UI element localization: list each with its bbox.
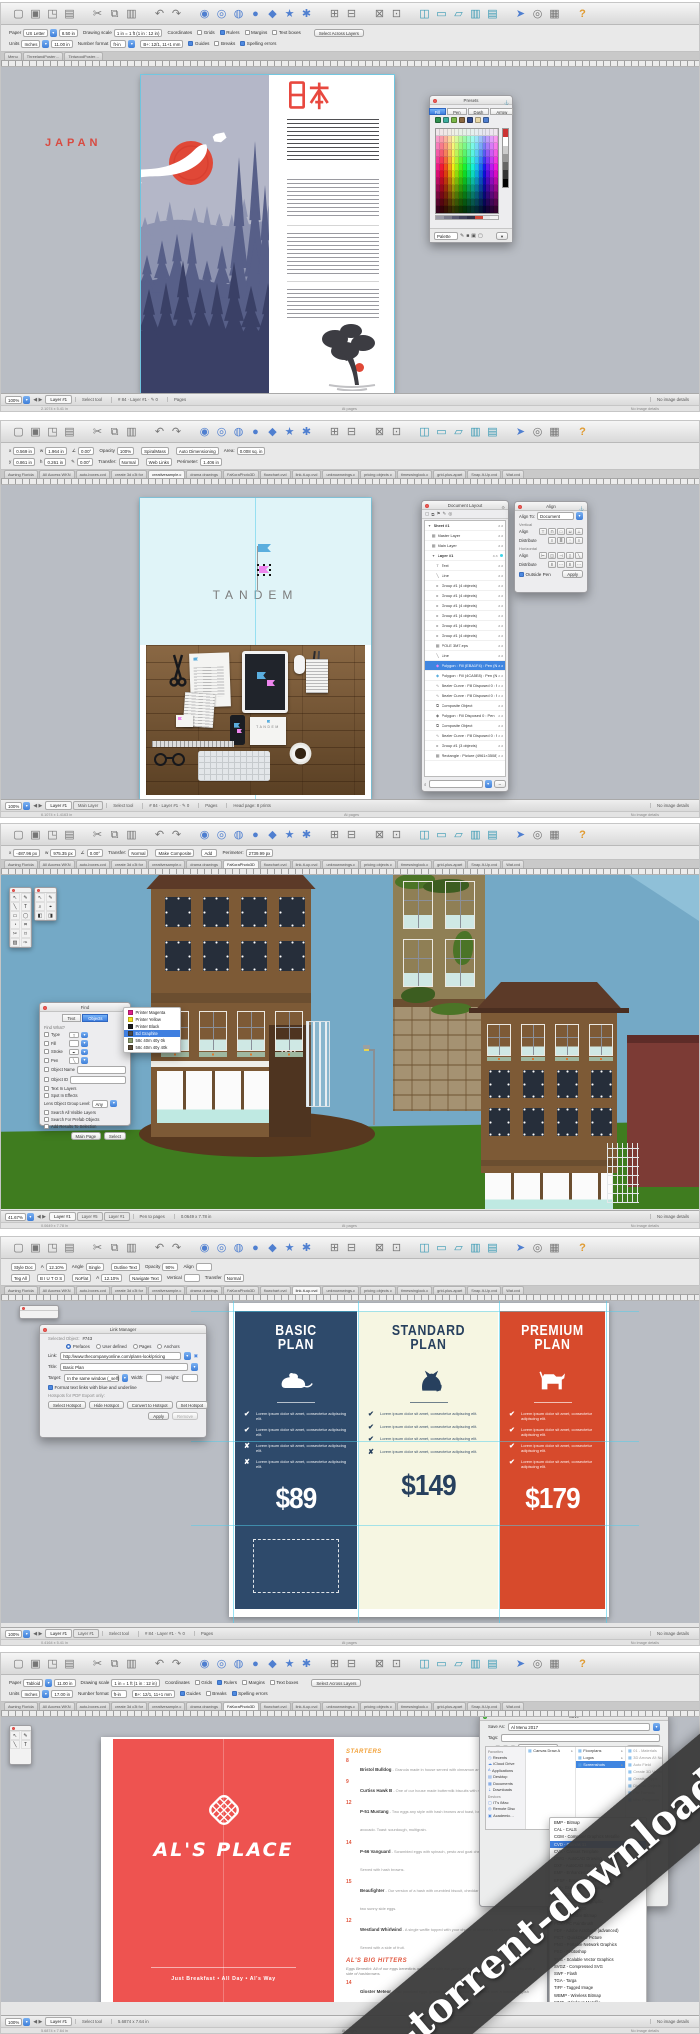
gray-swatch[interactable] <box>503 137 508 145</box>
share-icon[interactable]: ➤ <box>513 1238 528 1258</box>
ink-icon[interactable]: ◍ <box>231 4 246 24</box>
open-icon[interactable]: ▣ <box>28 422 43 442</box>
layer-row[interactable]: ▦ Main Layer a a <box>425 541 505 551</box>
layer-row[interactable]: ▦ Rectangle : Picture (4961×3508) a a <box>425 751 505 761</box>
preview-icon[interactable]: ◎ <box>530 825 545 845</box>
save-icon[interactable]: ◳ <box>45 4 60 24</box>
grids-checkbox[interactable]: Grids <box>197 30 214 35</box>
inspector-field[interactable]: 0.861 in <box>13 458 35 466</box>
layer-row[interactable]: ▸ Group #1 (4 objects) a a <box>425 601 505 611</box>
presets-tab[interactable]: Pen <box>447 108 466 116</box>
align-edge-icon[interactable]: ▯ <box>566 552 574 559</box>
grid-icon[interactable]: ⊞ <box>327 1654 342 1674</box>
link-stepper[interactable]: ▾ <box>184 1352 191 1360</box>
align-left-icon[interactable]: ⊢ <box>539 552 547 559</box>
custom-swatch[interactable] <box>459 216 467 219</box>
new-document-icon[interactable]: ▢ <box>11 422 26 442</box>
find-checkbox[interactable] <box>44 1124 49 1129</box>
trash-swatch-icon[interactable]: ▢ <box>478 233 483 239</box>
attribute-checkbox[interactable] <box>44 1032 49 1037</box>
copy-icon[interactable]: ⧉ <box>107 825 122 845</box>
inspector-field[interactable]: Teg All <box>11 1274 30 1282</box>
lock-icon[interactable]: ⊠ <box>372 825 387 845</box>
attribute-stepper[interactable]: ▾ <box>81 1049 88 1056</box>
distribute-span-icon[interactable]: ⋯ <box>575 561 583 568</box>
presets-tab[interactable]: Fill <box>429 108 446 116</box>
link-kind-radio[interactable]: Pages <box>133 1344 152 1349</box>
layer-flags[interactable]: a a <box>493 554 498 558</box>
layer-flags[interactable]: a a <box>498 584 503 588</box>
inspector-field[interactable]: 0.008 sq. in <box>237 447 266 455</box>
zoom-field[interactable]: 100% <box>5 802 22 810</box>
document-tab[interactable]: flowchart.cvd <box>260 470 291 478</box>
layer-row[interactable]: ▾ Sheet #1 a a <box>425 521 505 531</box>
find-button[interactable]: Main Page <box>71 1132 102 1140</box>
document-tab[interactable]: drama drawings <box>186 470 222 478</box>
inspector-field[interactable] <box>184 1274 200 1282</box>
layer-flags[interactable]: a a <box>498 694 503 698</box>
redo-icon[interactable]: ↷ <box>169 825 184 845</box>
zoom-field[interactable]: 100% <box>5 396 22 404</box>
inspector-field[interactable]: B I U T O S <box>37 1274 65 1282</box>
layers-search-stepper[interactable]: ▾ <box>485 780 492 788</box>
custom-swatch[interactable] <box>436 216 444 219</box>
inspector-field[interactable]: 975.35 px <box>50 849 75 857</box>
pasteboard-japan-text[interactable]: JAPAN <box>45 137 101 149</box>
web-palette-icon[interactable] <box>443 117 449 123</box>
undo-icon[interactable]: ↶ <box>152 4 167 24</box>
layout-icon[interactable]: ▭ <box>434 422 449 442</box>
cut-icon[interactable]: ✂ <box>90 1654 105 1674</box>
layer-row[interactable]: ∿ Bezier Curve : Fill Disposed 0 : Pen a… <box>425 681 505 691</box>
guides-checkbox[interactable]: Guides <box>180 1691 201 1696</box>
document-tab[interactable]: Snap-It-Up.cvd <box>467 1286 501 1294</box>
lock-icon[interactable]: ⊠ <box>372 4 387 24</box>
presets-panel[interactable]: Presets⚓ FillPenDashArrow Palette ✎■▣▢ ▾ <box>429 95 513 243</box>
link-kind-radio[interactable]: Anchors <box>157 1344 179 1349</box>
custom-swatch[interactable] <box>444 216 452 219</box>
share-icon[interactable]: ➤ <box>513 422 528 442</box>
document-tab[interactable]: Wat.cvd <box>502 470 524 478</box>
document-tab[interactable]: Snap-It-Up.cvd <box>467 470 501 478</box>
align-anchor-icon[interactable]: ╲ <box>575 552 583 559</box>
color-swatch[interactable] <box>494 171 498 178</box>
presets-tab[interactable]: Dash <box>468 108 490 116</box>
breaks-checkbox[interactable]: Breaks <box>214 41 235 46</box>
document-tab[interactable]: drama drawings <box>186 1286 222 1294</box>
apply-button[interactable]: Apply <box>562 570 583 578</box>
units-select[interactable]: Inches <box>21 1690 40 1698</box>
inspector-field[interactable]: SpiralMass <box>141 447 169 455</box>
layer-tab[interactable]: Layer #1 <box>45 1629 72 1638</box>
premium-plan-column[interactable]: PREMIUMPLAN ✔ Lorem ipsum dolor sit amet… <box>500 1311 605 1609</box>
print-icon[interactable]: ▤ <box>62 1238 77 1258</box>
canvas-tandem[interactable]: TANDEM <box>1 485 699 815</box>
tool-icon[interactable]: ⌗ <box>21 920 31 929</box>
layer-flags[interactable]: a a <box>498 524 503 528</box>
distribute-top-icon[interactable]: ≡ <box>548 537 556 544</box>
pages-icon[interactable]: ▤ <box>485 1238 500 1258</box>
title-stepper[interactable]: ▾ <box>191 1363 198 1371</box>
recent-colors-icon[interactable] <box>435 117 441 123</box>
color-menu-item[interactable]: 58c 40m 40y 0k <box>124 1037 180 1044</box>
plan-price[interactable]: $89 <box>241 1483 351 1516</box>
unlock-icon[interactable]: ⊡ <box>389 422 404 442</box>
canvas-pricing[interactable]: BASICPLAN ✔ Lorem ipsum dolor sit amet, … <box>1 1301 699 1623</box>
tool-palette[interactable]: ↖✎╲T <box>9 1725 32 1765</box>
document-tab[interactable]: pricing objects c <box>360 860 396 868</box>
pricing-page[interactable]: BASICPLAN ✔ Lorem ipsum dolor sit amet, … <box>229 1303 609 1617</box>
layout-icon[interactable]: ▭ <box>434 4 449 24</box>
inspector-field[interactable]: 100% <box>117 447 134 455</box>
attribute-control[interactable]: ╲ <box>69 1057 79 1064</box>
layer-flags[interactable]: a a <box>498 574 503 578</box>
gray-swatch[interactable] <box>503 179 508 187</box>
new-sheet-icon[interactable]: ▢ <box>425 511 429 517</box>
arrange-icon[interactable]: ◫ <box>417 1654 432 1674</box>
presets-titlebar[interactable]: Presets⚓ <box>430 96 512 105</box>
preview-icon[interactable]: ◎ <box>530 1654 545 1674</box>
page-nav-icons[interactable]: ◀ ▶ <box>33 803 42 809</box>
attribute-checkbox[interactable] <box>44 1041 49 1046</box>
black-swatch-icon[interactable]: ■ <box>466 233 469 239</box>
fill-inspector-icon[interactable]: ◉ <box>197 825 212 845</box>
tool-icon[interactable]: ◧ <box>35 911 45 920</box>
document-tab[interactable]: creativesample.c <box>148 470 185 478</box>
guides-checkbox[interactable]: Guides <box>188 41 209 46</box>
inspector-field[interactable]: Navigate Text <box>129 1274 162 1282</box>
inspector-field[interactable]: Auto Dimensioning <box>176 447 219 455</box>
link-manager-titlebar[interactable]: Link Manager <box>40 1325 206 1334</box>
lock-icon[interactable]: ⊠ <box>372 1654 387 1674</box>
undo-icon[interactable]: ↶ <box>152 825 167 845</box>
price-selection[interactable] <box>253 1539 339 1593</box>
save-as-stepper[interactable]: ▾ <box>653 1723 660 1731</box>
symbol-icon[interactable]: ★ <box>282 1654 297 1674</box>
text-wrap-icon[interactable]: ▱ <box>451 825 466 845</box>
layout-icon[interactable]: ▭ <box>434 1654 449 1674</box>
document-tab[interactable]: Wat.cvd <box>502 1286 524 1294</box>
open-icon[interactable]: ▣ <box>28 4 43 24</box>
document-tab[interactable]: unknownwings.c <box>322 860 359 868</box>
distribute-space-icon[interactable]: ⋮ <box>566 537 574 544</box>
layer-row[interactable]: ◆ Polygon : Fill (EBA1F4) : Pen (No…) a … <box>425 661 505 671</box>
color-swatch[interactable] <box>494 206 498 213</box>
layer-flags[interactable]: a a <box>498 614 503 618</box>
layer-row[interactable]: ╲ Line a a <box>425 571 505 581</box>
target-select[interactable]: In the same window (_self) <box>64 1374 119 1382</box>
lens-stepper[interactable]: ▾ <box>110 1100 117 1107</box>
symbol-icon[interactable]: ★ <box>282 4 297 24</box>
plan-price[interactable]: $179 <box>505 1483 600 1516</box>
gradient-icon[interactable]: ◆ <box>265 1654 280 1674</box>
snap-icon[interactable]: ⊟ <box>344 1238 359 1258</box>
open-icon[interactable]: ▣ <box>28 1654 43 1674</box>
document-tab[interactable]: create 3d c3t for <box>111 470 147 478</box>
paper-stepper[interactable]: ▾ <box>45 1679 52 1687</box>
number-format-field[interactable]: ft-in <box>111 1690 127 1698</box>
inspector-field[interactable]: 1.964 in <box>45 447 67 455</box>
help-icon[interactable]: ? <box>575 422 590 442</box>
unlock-icon[interactable]: ⊡ <box>389 825 404 845</box>
grid-icon[interactable]: ⊞ <box>327 825 342 845</box>
color-menu-item[interactable]: Printer Magenta <box>124 1009 180 1016</box>
help-icon[interactable]: ? <box>575 1238 590 1258</box>
layer-flags[interactable]: a a <box>498 754 503 758</box>
restaurant-name[interactable]: AL'S PLACE <box>113 1839 334 1861</box>
print-icon[interactable]: ▤ <box>62 4 77 24</box>
bucket-icon[interactable]: ● <box>248 825 263 845</box>
field-checkbox[interactable] <box>44 1067 49 1072</box>
format-menu-item[interactable]: SWF - Flash <box>550 1970 646 1977</box>
grayscale-strip[interactable] <box>502 128 509 188</box>
document-tab[interactable]: create 3d c3t for <box>111 860 147 868</box>
document-tab[interactable]: auto-boxes.cvd <box>76 470 110 478</box>
layer-flags[interactable]: a a <box>498 564 503 568</box>
document-tab[interactable]: Wat.cvd <box>502 1702 524 1710</box>
cut-icon[interactable]: ✂ <box>90 825 105 845</box>
layer-row[interactable]: ▸ Group #1 (4 objects) a a <box>425 621 505 631</box>
document-tab[interactable]: Awning Florida <box>4 1286 38 1294</box>
preview-icon[interactable]: ◎ <box>530 4 545 24</box>
units-stepper[interactable]: ▾ <box>42 1690 49 1698</box>
paste-icon[interactable]: ▥ <box>124 1654 139 1674</box>
zoom-field[interactable]: 100% <box>5 2018 22 2026</box>
tool-icon[interactable]: ⌕ <box>35 902 45 911</box>
document-tab[interactable]: drama drawings <box>186 860 222 868</box>
columns-icon[interactable]: ▥ <box>468 825 483 845</box>
unlock-icon[interactable]: ⊡ <box>389 1654 404 1674</box>
image-fill-icon[interactable] <box>475 117 481 123</box>
document-tab[interactable]: grid-plus-apart <box>433 1286 466 1294</box>
apply-button[interactable]: Apply <box>148 1412 169 1420</box>
basic-plan-column[interactable]: BASICPLAN ✔ Lorem ipsum dolor sit amet, … <box>235 1311 357 1609</box>
arrange-icon[interactable]: ◫ <box>417 4 432 24</box>
menu-cover-page[interactable]: AL'S PLACE Just Breakfast • All Day • Al… <box>113 1739 334 2002</box>
document-tab[interactable]: pricing objects c <box>360 470 396 478</box>
custom-swatch[interactable] <box>467 216 475 219</box>
layer-flags[interactable]: a a <box>498 624 503 628</box>
grids-checkbox[interactable]: Grids <box>195 1680 212 1685</box>
unlock-icon[interactable]: ⊡ <box>389 4 404 24</box>
layer-tab[interactable]: Layer #1 <box>73 1629 99 1638</box>
spelling-checkbox[interactable]: Spelling errors <box>232 1691 268 1696</box>
save-as-field[interactable]: Al Menu 2017 <box>508 1723 650 1731</box>
save-titlebar[interactable]: Save <box>480 1717 668 1721</box>
grid-icon[interactable]: ⊞ <box>327 4 342 24</box>
eye-column-icon[interactable]: ◎ <box>448 511 452 517</box>
bucket-icon[interactable]: ● <box>248 1654 263 1674</box>
coordinate-extra-field[interactable]: B+: 12/1, 11+1 mm <box>140 40 183 48</box>
close-icon[interactable] <box>518 505 522 509</box>
folder-icon[interactable]: ▣ <box>194 1353 198 1359</box>
folder-row[interactable]: ▦Floorplans▸ <box>576 1747 625 1754</box>
document-tab[interactable]: FaKoraPhoto3D <box>223 470 259 478</box>
document-tab[interactable]: timeswinglock.c <box>397 1702 432 1710</box>
document-tab[interactable]: FaKoraPhoto3D <box>223 1702 259 1710</box>
layer-flags[interactable]: a a <box>498 604 503 608</box>
arrange-icon[interactable]: ◫ <box>417 825 432 845</box>
inspector-field[interactable]: 1.406 in <box>200 458 222 466</box>
columns-icon[interactable]: ▥ <box>468 422 483 442</box>
document-tab[interactable]: Awning Florida <box>4 860 38 868</box>
color-swatch[interactable] <box>494 164 498 171</box>
distribute-right-icon[interactable]: ⫴ <box>566 561 574 568</box>
inspector-field[interactable]: Web Links <box>146 458 172 466</box>
middle-building[interactable] <box>393 875 485 1111</box>
swatch-book-icon[interactable] <box>459 117 465 123</box>
zoom-field[interactable]: 41.67% <box>5 1213 26 1221</box>
cut-icon[interactable]: ✂ <box>90 4 105 24</box>
effects-icon[interactable]: ✱ <box>299 4 314 24</box>
color-swatch[interactable] <box>494 143 498 150</box>
textboxes-checkbox[interactable]: Text boxes <box>272 30 300 35</box>
format-menu-item[interactable]: SVGZ - Compressed SVG <box>550 1963 646 1970</box>
pages-icon[interactable]: ▤ <box>485 1654 500 1674</box>
bucket-icon[interactable]: ● <box>248 4 263 24</box>
document-tab[interactable]: grid-plus-apart <box>433 1702 466 1710</box>
document-tab[interactable]: grid-plus-apart <box>433 860 466 868</box>
save-icon[interactable]: ◳ <box>45 1654 60 1674</box>
inspector-field[interactable]: 90% <box>162 1263 178 1271</box>
export-icon[interactable]: ▦ <box>547 825 562 845</box>
print-icon[interactable]: ▤ <box>62 422 77 442</box>
document-tab[interactable]: link-it-up.cvd <box>292 1702 322 1710</box>
rulers-checkbox[interactable]: Rulers <box>217 1680 237 1685</box>
palette-select[interactable]: Palette <box>434 232 458 240</box>
gradient-icon[interactable]: ◆ <box>265 1238 280 1258</box>
tool-icon[interactable]: ◨ <box>46 911 56 920</box>
document-tab[interactable]: FaKoraPhoto3D <box>223 1286 259 1294</box>
bucket-icon[interactable]: ● <box>248 1238 263 1258</box>
export-icon[interactable]: ▦ <box>547 1654 562 1674</box>
inspector-field[interactable]: 12.10% <box>101 1274 122 1282</box>
inspector-field[interactable]: Single <box>86 1263 104 1271</box>
left-building[interactable] <box>151 875 311 1137</box>
inspector-field[interactable]: 2739.99 px <box>246 849 274 857</box>
effects-icon[interactable]: ✱ <box>299 1238 314 1258</box>
gray-swatch[interactable] <box>503 129 508 137</box>
layer-row[interactable]: ╲ Line a a <box>425 651 505 661</box>
effects-icon[interactable]: ✱ <box>299 825 314 845</box>
zoom-stepper[interactable]: ▾ <box>27 1213 34 1221</box>
drawing-scale-field[interactable]: 1 in = 1 ft (1 in : 12 in) <box>114 29 163 37</box>
color-swatch[interactable] <box>494 185 498 192</box>
color-menu-item[interactable]: 58c 40m 40y 40k <box>124 1044 180 1051</box>
inspector-field[interactable]: 0.00° <box>87 849 103 857</box>
attribute-control[interactable] <box>69 1040 79 1047</box>
document-tab[interactable]: ThreelandPoster… <box>23 52 64 60</box>
format-menu-item[interactable]: WMF - Windows Metafile <box>550 1999 646 2002</box>
paste-icon[interactable]: ▥ <box>124 4 139 24</box>
distribute-hcenter-icon[interactable]: ⋯ <box>557 561 565 568</box>
document-tab[interactable]: creativesample.c <box>148 860 185 868</box>
align-to-select[interactable]: Document <box>537 512 574 520</box>
layer-row[interactable]: T Text a a <box>425 561 505 571</box>
cut-icon[interactable]: ✂ <box>90 1238 105 1258</box>
arrange-icon[interactable]: ◫ <box>417 1238 432 1258</box>
paper-select[interactable]: Tabloid <box>23 1679 43 1687</box>
document-tab[interactable]: pricing objects c <box>360 1702 396 1710</box>
hotspot-button[interactable]: Set Hotspot <box>176 1401 208 1409</box>
layer-row[interactable]: ◆ Polygon : Fill (4CA5E8) : Pen (No…) a … <box>425 671 505 681</box>
format-menu-item[interactable]: WBMP - Wireless Bitmap <box>550 1992 646 1999</box>
save-icon[interactable]: ◳ <box>45 1238 60 1258</box>
new-document-icon[interactable]: ▢ <box>11 4 26 24</box>
inspector-field[interactable]: 12.10% <box>46 1263 67 1271</box>
canvas-city[interactable]: ↖✎╲T▭◯◔⌗✂⌑▨✑ ↖✎⌕⌖◧◨ Find⚓ TextObjects Fi… <box>1 875 699 1209</box>
sidebar-item[interactable]: ⇣Downloads <box>488 1787 523 1794</box>
ink-icon[interactable]: ◍ <box>231 422 246 442</box>
units-stepper[interactable]: ▾ <box>42 40 49 48</box>
paper-stepper[interactable]: ▾ <box>50 29 57 37</box>
lock-icon[interactable]: ⊠ <box>372 422 387 442</box>
share-icon[interactable]: ➤ <box>513 825 528 845</box>
snap-icon[interactable]: ⊟ <box>344 4 359 24</box>
tool-icon[interactable]: ◯ <box>21 911 31 920</box>
paper-height-field[interactable]: 11.00 in <box>51 40 72 48</box>
select-across-layers-button[interactable]: Select Across Layers <box>311 1679 361 1687</box>
folder-row[interactable]: ▦Screenshots▸ <box>576 1761 625 1768</box>
ink-icon[interactable]: ◍ <box>231 825 246 845</box>
save-icon[interactable]: ◳ <box>45 422 60 442</box>
color-swatch[interactable] <box>494 199 498 206</box>
attribute-stepper[interactable]: ▾ <box>81 1040 88 1047</box>
tool-icon[interactable]: ✎ <box>21 893 31 902</box>
attribute-stepper[interactable]: ▾ <box>81 1032 88 1039</box>
inspector-field[interactable]: -487.96 px <box>13 849 40 857</box>
inspector-field[interactable]: Normal <box>128 849 148 857</box>
columns-icon[interactable]: ▥ <box>468 4 483 24</box>
gray-swatch[interactable] <box>503 162 508 170</box>
fill-inspector-icon[interactable]: ◉ <box>197 4 212 24</box>
document-tab[interactable]: pricing objects c <box>360 1286 396 1294</box>
pen-inspector-icon[interactable]: ◎ <box>214 4 229 24</box>
paper-width-field[interactable]: 8.50 in <box>59 29 78 37</box>
open-icon[interactable]: ▣ <box>28 1238 43 1258</box>
zoom-stepper[interactable]: ▾ <box>23 396 30 404</box>
inspector-field[interactable]: Style Doc <box>11 1263 36 1271</box>
paste-icon[interactable]: ▥ <box>124 1238 139 1258</box>
inspector-field[interactable]: 0.00° <box>77 458 93 466</box>
redo-icon[interactable]: ↷ <box>169 422 184 442</box>
layer-tab[interactable]: Layer #1 <box>45 395 72 404</box>
document-tab[interactable]: All Access WKN <box>39 1702 75 1710</box>
hotspot-button[interactable]: Select Hotspot <box>48 1401 86 1409</box>
zoom-stepper[interactable]: ▾ <box>23 1630 30 1638</box>
snap-icon[interactable]: ⊟ <box>344 825 359 845</box>
gray-swatch[interactable] <box>503 154 508 162</box>
color-menu-item[interactable]: Printer Black <box>124 1023 180 1030</box>
inspector-field[interactable] <box>196 1263 212 1271</box>
page-nav-icons[interactable]: ◀ ▶ <box>33 1631 42 1637</box>
layer-flags[interactable]: a a <box>498 734 503 738</box>
document-tab[interactable]: link-it-up.cvd <box>292 470 322 478</box>
color-swatch[interactable] <box>494 136 498 143</box>
redo-icon[interactable]: ↷ <box>169 1238 184 1258</box>
drawing-scale-field[interactable]: 1 in = 1 ft (1 in : 12 in) <box>111 1679 160 1687</box>
document-tab[interactable]: All Access WKN <box>39 860 75 868</box>
hotspot-button[interactable]: Convert to Hotspot <box>127 1401 173 1409</box>
align-middle-icon[interactable]: ⊓ <box>548 528 556 535</box>
document-tab[interactable]: FaKoraPhoto3D <box>223 860 259 868</box>
color-swatch[interactable] <box>494 129 498 136</box>
height-field[interactable] <box>182 1374 198 1382</box>
layer-flags[interactable]: a a <box>498 664 503 668</box>
fill-inspector-icon[interactable]: ◉ <box>197 1654 212 1674</box>
align-to-stepper[interactable]: ▾ <box>576 512 583 520</box>
gear-icon[interactable]: ⚙ <box>501 503 505 512</box>
